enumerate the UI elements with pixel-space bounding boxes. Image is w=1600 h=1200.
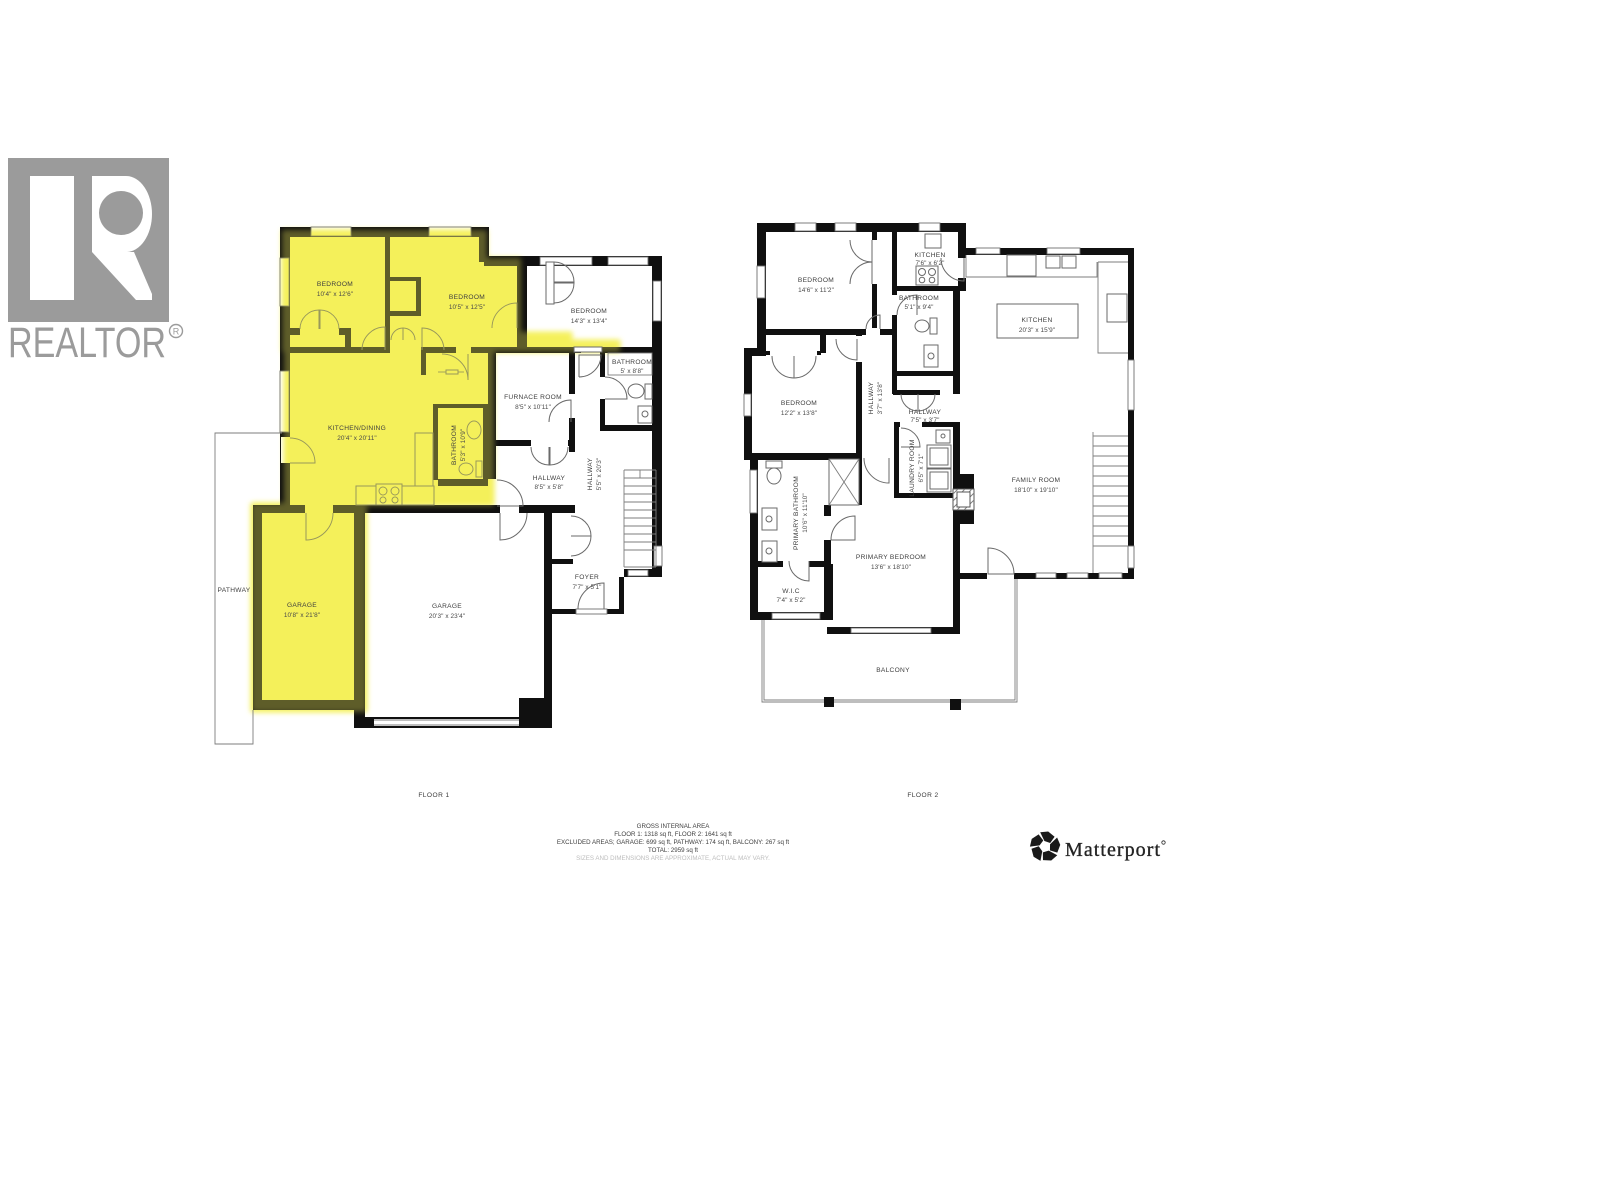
svg-text:14'3" x 13'4": 14'3" x 13'4": [571, 318, 607, 325]
svg-text:R: R: [173, 327, 180, 337]
svg-text:BATHROOM: BATHROOM: [899, 295, 939, 302]
svg-text:BEDROOM: BEDROOM: [798, 277, 834, 284]
svg-text:20'3" x 23'4": 20'3" x 23'4": [429, 613, 465, 620]
svg-text:BEDROOM: BEDROOM: [317, 281, 353, 288]
svg-text:3'7" x 13'8": 3'7" x 13'8": [877, 382, 884, 415]
svg-text:HALLWAY: HALLWAY: [868, 382, 875, 415]
svg-text:FLOOR 1: 1318 sq ft, FLOOR 2:: FLOOR 1: 1318 sq ft, FLOOR 2: 1641 sq ft: [614, 831, 732, 838]
svg-text:PRIMARY BATHROOM: PRIMARY BATHROOM: [793, 476, 800, 550]
svg-text:TOTAL: 2959 sq ft: TOTAL: 2959 sq ft: [648, 847, 698, 854]
svg-text:KITCHEN: KITCHEN: [914, 252, 945, 259]
svg-text:GARAGE: GARAGE: [287, 602, 317, 609]
svg-text:20'3" x 15'9": 20'3" x 15'9": [1019, 327, 1055, 334]
svg-text:PRIMARY BEDROOM: PRIMARY BEDROOM: [856, 554, 926, 561]
svg-text:BEDROOM: BEDROOM: [571, 308, 607, 315]
svg-text:GARAGE: GARAGE: [432, 603, 462, 610]
svg-text:12'2" x 13'8": 12'2" x 13'8": [781, 410, 817, 417]
svg-text:BATHROOM: BATHROOM: [451, 425, 458, 465]
svg-text:5'5" x 20'3": 5'5" x 20'3": [596, 458, 603, 491]
svg-text:SIZES AND DIMENSIONS ARE APPRO: SIZES AND DIMENSIONS ARE APPROXIMATE, AC…: [576, 855, 770, 862]
svg-text:13'6" x 18'10": 13'6" x 18'10": [871, 564, 911, 571]
svg-text:Matterport: Matterport: [1065, 839, 1160, 861]
svg-text:REALTOR: REALTOR: [8, 319, 166, 367]
svg-text:20'4" x 20'11": 20'4" x 20'11": [337, 435, 377, 442]
svg-text:HALLWAY: HALLWAY: [533, 475, 566, 482]
svg-text:8'5" x 5'8": 8'5" x 5'8": [534, 484, 563, 491]
svg-text:7'4" x 5'2": 7'4" x 5'2": [776, 597, 805, 604]
svg-text:10'4" x 12'6": 10'4" x 12'6": [317, 291, 353, 298]
svg-text:18'10" x 19'10": 18'10" x 19'10": [1014, 487, 1058, 494]
svg-text:BEDROOM: BEDROOM: [449, 294, 485, 301]
svg-text:6'5" x 7'1": 6'5" x 7'1": [918, 453, 925, 482]
svg-text:10'8" x 21'8": 10'8" x 21'8": [284, 612, 320, 619]
svg-text:HALLWAY: HALLWAY: [909, 409, 942, 416]
svg-text:7'7" x 5'1": 7'7" x 5'1": [572, 584, 601, 591]
svg-text:7'5" x 3'7": 7'5" x 3'7": [910, 417, 939, 424]
svg-text:10'6" x 11'10": 10'6" x 11'10": [802, 493, 809, 533]
svg-text:KITCHEN/DINING: KITCHEN/DINING: [328, 425, 386, 432]
svg-text:HALLWAY: HALLWAY: [587, 458, 594, 491]
svg-text:10'5" x 12'5": 10'5" x 12'5": [449, 304, 485, 311]
svg-text:PATHWAY: PATHWAY: [218, 587, 251, 594]
svg-text:FOYER: FOYER: [575, 574, 599, 581]
svg-text:W.I.C: W.I.C: [782, 588, 800, 595]
svg-text:FAMILY ROOM: FAMILY ROOM: [1012, 477, 1061, 484]
svg-text:LAUNDRY ROOM: LAUNDRY ROOM: [909, 439, 916, 496]
svg-text:BALCONY: BALCONY: [876, 667, 910, 674]
svg-text:FURNACE ROOM: FURNACE ROOM: [504, 394, 562, 401]
svg-text:GROSS INTERNAL AREA: GROSS INTERNAL AREA: [637, 823, 711, 830]
svg-text:5'1" x 9'4": 5'1" x 9'4": [904, 304, 933, 311]
svg-text:5' x 8'8": 5' x 8'8": [620, 368, 643, 375]
svg-text:FLOOR 1: FLOOR 1: [418, 792, 449, 799]
svg-text:7'6" x 6'2": 7'6" x 6'2": [915, 260, 944, 267]
svg-text:14'6" x 11'2": 14'6" x 11'2": [798, 287, 834, 294]
svg-text:BATHROOM: BATHROOM: [612, 359, 652, 366]
svg-text:EXCLUDED AREAS; GARAGE: 699 sq: EXCLUDED AREAS; GARAGE: 699 sq ft, PATHW…: [557, 839, 790, 846]
svg-text:8'5" x 10'11": 8'5" x 10'11": [515, 404, 551, 411]
svg-text:FLOOR 2: FLOOR 2: [907, 792, 938, 799]
svg-text:KITCHEN: KITCHEN: [1021, 317, 1052, 324]
svg-text:BEDROOM: BEDROOM: [781, 400, 817, 407]
svg-text:5'3" x 10'9": 5'3" x 10'9": [460, 429, 467, 462]
